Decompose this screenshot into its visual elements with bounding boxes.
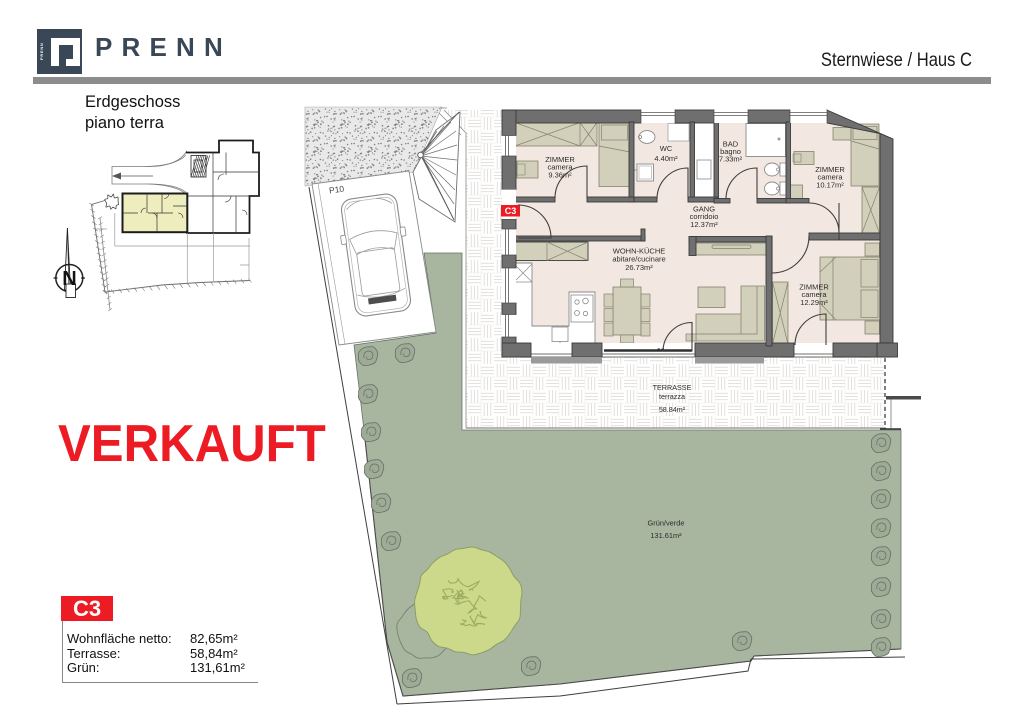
svg-text:58.84m²: 58.84m² bbox=[659, 405, 686, 414]
svg-text:terrazza: terrazza bbox=[659, 392, 685, 401]
svg-text:7.33m²: 7.33m² bbox=[719, 155, 743, 164]
svg-text:P10: P10 bbox=[328, 183, 345, 195]
svg-text:Grün/verde: Grün/verde bbox=[648, 519, 685, 528]
svg-text:C3: C3 bbox=[505, 206, 517, 216]
svg-text:10.17m²: 10.17m² bbox=[816, 181, 844, 190]
svg-text:12.29m²: 12.29m² bbox=[800, 298, 828, 307]
svg-text:N: N bbox=[62, 268, 76, 290]
svg-text:12.37m²: 12.37m² bbox=[690, 220, 718, 229]
svg-text:WC: WC bbox=[660, 144, 673, 153]
svg-text:4.40m²: 4.40m² bbox=[654, 154, 678, 163]
svg-text:26.73m²: 26.73m² bbox=[625, 263, 653, 272]
svg-text:131.61m²: 131.61m² bbox=[650, 531, 682, 540]
svg-text:9.36m²: 9.36m² bbox=[548, 171, 572, 180]
svg-text:TERRASSE: TERRASSE bbox=[653, 383, 692, 392]
